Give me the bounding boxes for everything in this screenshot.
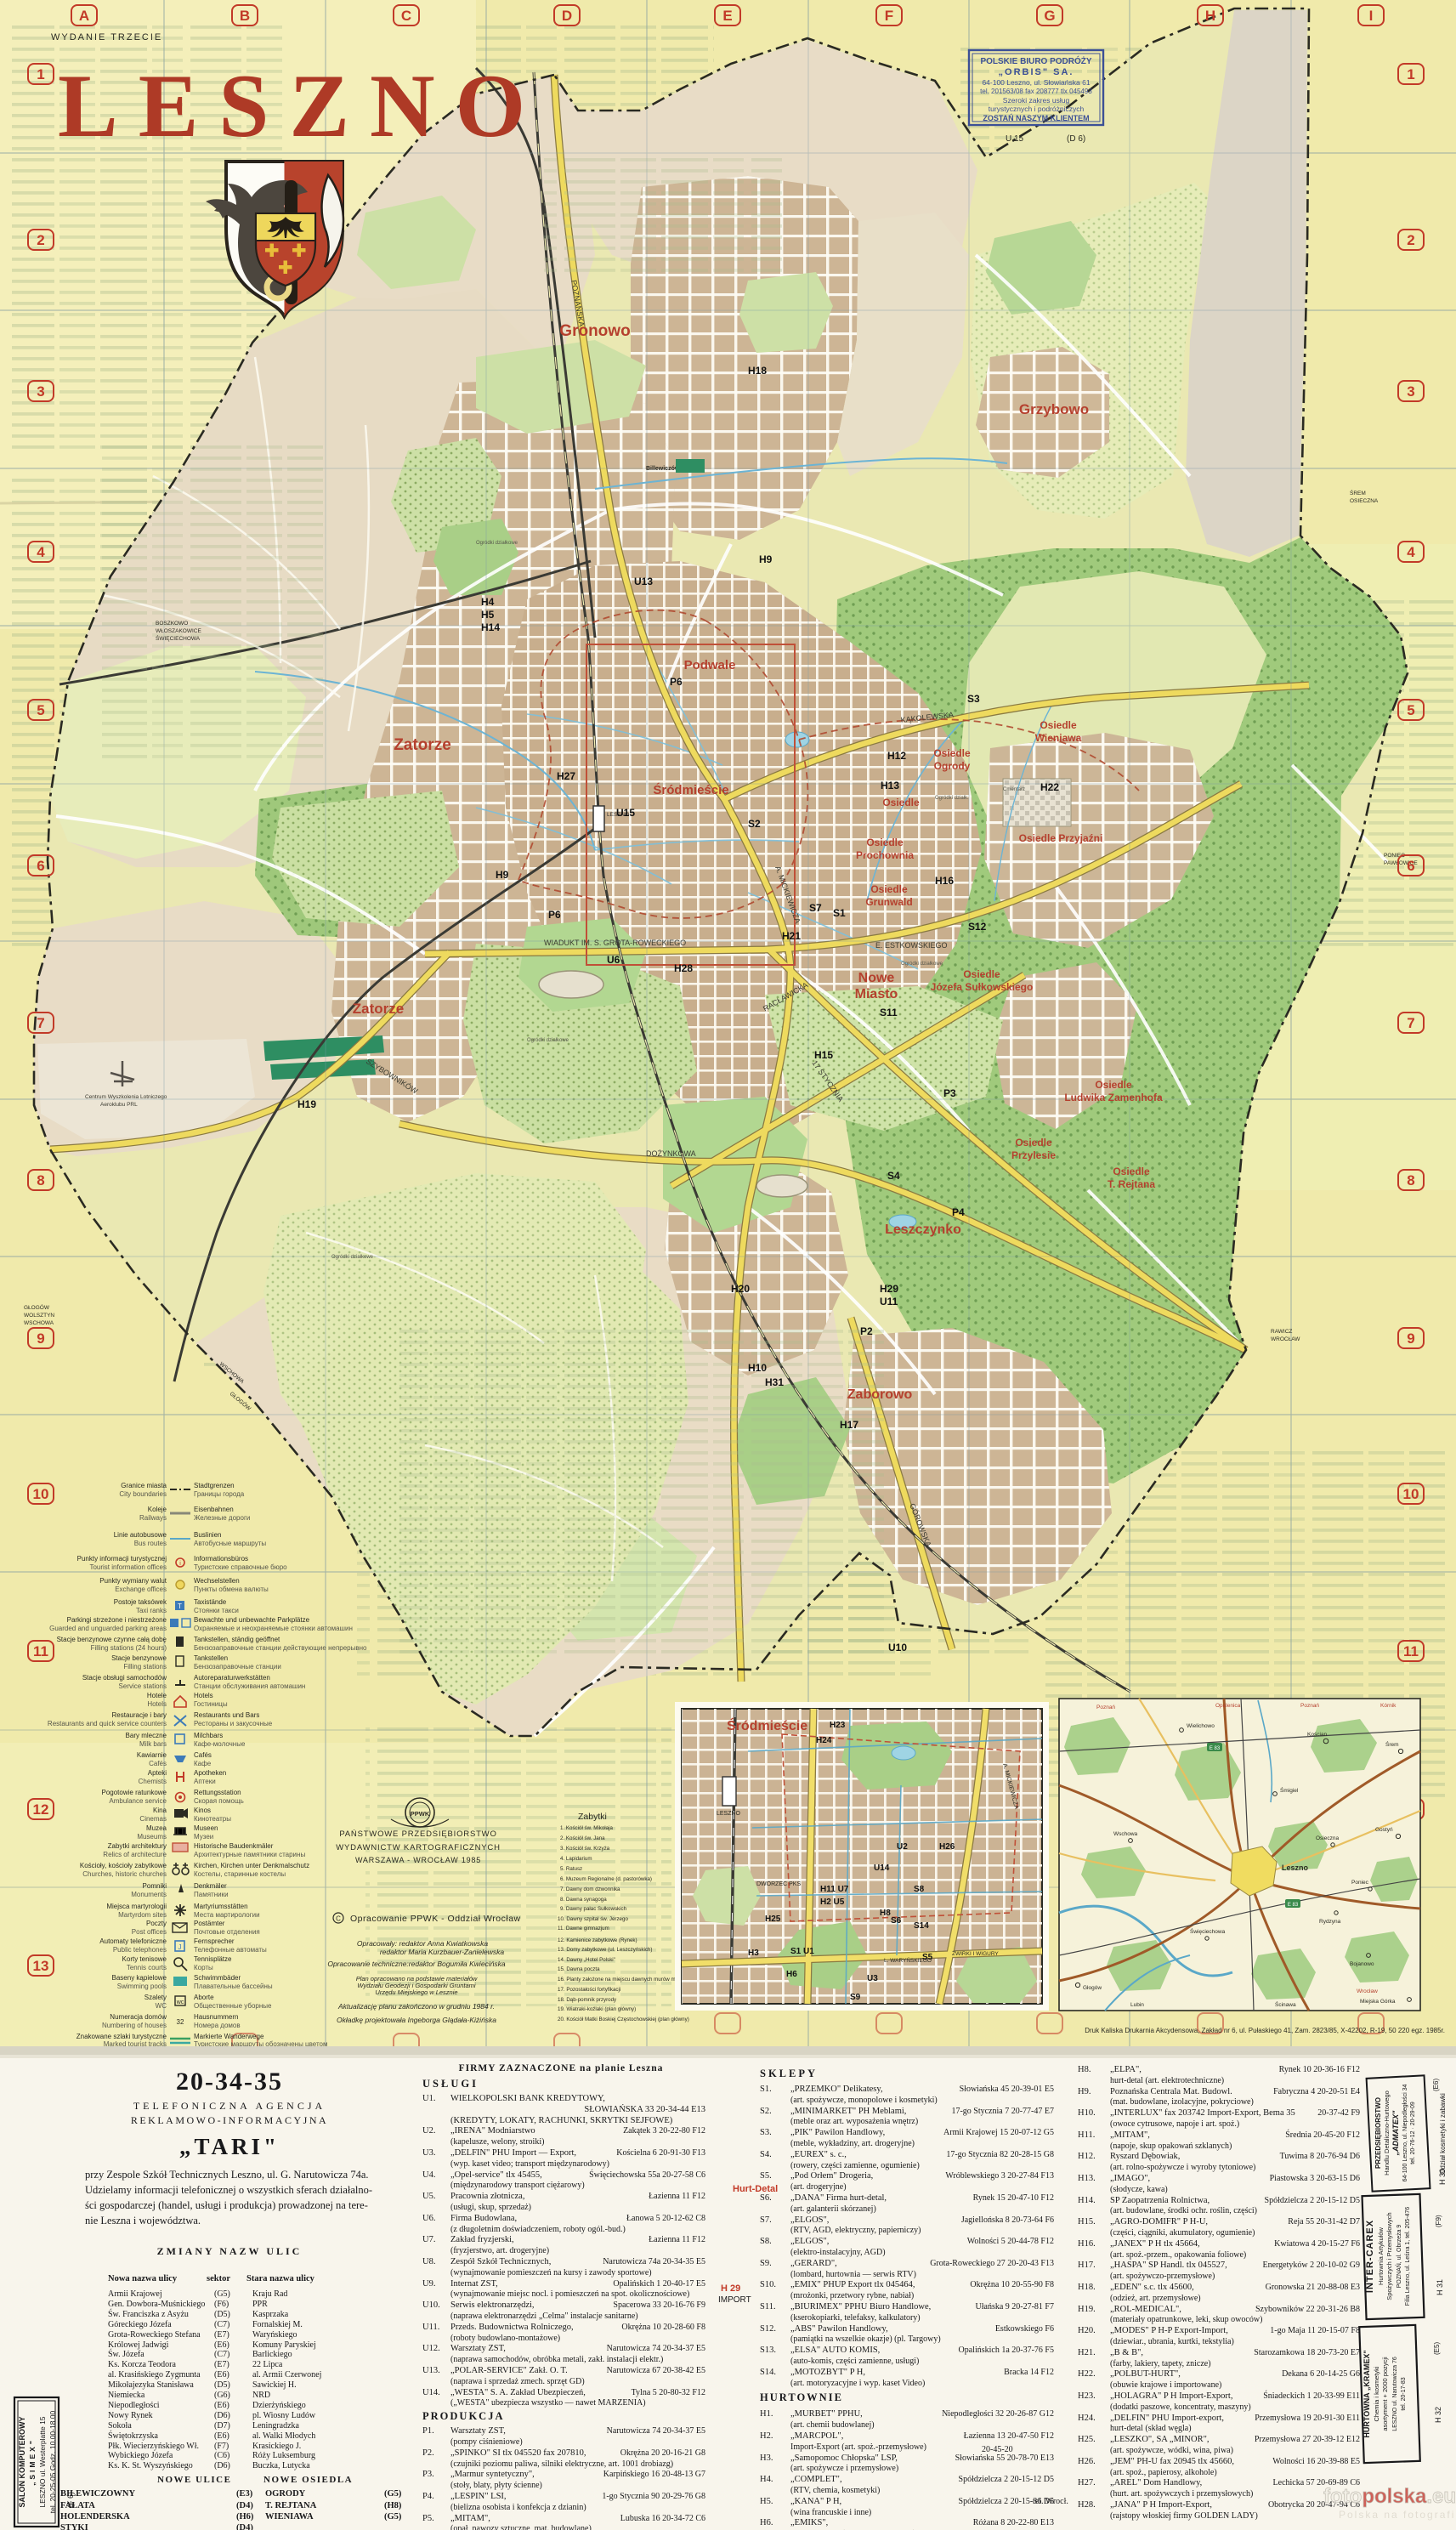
svg-text:H20.: H20. [1078,2326,1096,2335]
svg-text:(hurt. art. spożywczych i prze: (hurt. art. spożywczych i przemysłowych) [1110,2489,1253,2499]
svg-text:(stoły, blaty, płyty ścienne): (stoły, blaty, płyty ścienne) [450,2481,542,2490]
svg-text:„TARI": „TARI" [179,2134,280,2159]
svg-text:U11.: U11. [422,2323,439,2332]
svg-text:H11 U7: H11 U7 [820,1885,849,1894]
svg-text:Ks. K. St. Wyszyńskiego: Ks. K. St. Wyszyńskiego [108,2461,193,2470]
svg-text:Miejsca martyrologii: Miejsca martyrologii [106,1903,167,1910]
svg-text:Karpińskiego 16 20-48-13 G: Karpińskiego 16 20-48-13 G7 [603,2470,705,2479]
svg-text:(odzież, art. przemysłowe): (odzież, art. przemysłowe) [1110,2294,1201,2303]
svg-text:Przemysłowa 19 20-91-30 E1: Przemysłowa 19 20-91-30 E11 [1255,2414,1360,2423]
svg-text:Okrężna 10 20-55-90 F8: Okrężna 10 20-55-90 F8 [970,2280,1054,2289]
svg-text:Пункты обмена валюты: Пункты обмена валюты [194,1586,269,1593]
svg-text:E 83: E 83 [1210,1746,1221,1751]
svg-text:H10: H10 [748,1362,767,1374]
svg-text:S7.: S7. [760,2215,772,2225]
svg-text:9: 9 [1407,1330,1414,1347]
svg-text:Automaty telefoniczne: Automaty telefoniczne [99,1937,167,1945]
svg-text:T: T [178,1603,182,1610]
svg-text:Tylna 5 20-80-32 F12: Tylna 5 20-80-32 F12 [632,2388,705,2397]
svg-text:Łazienna 13 20-47-50 F12: Łazienna 13 20-47-50 F12 [964,2431,1054,2441]
svg-text:„GERARD",: „GERARD", [790,2259,837,2268]
svg-text:Pomniki: Pomniki [143,1882,167,1890]
svg-text:U14: U14 [874,1863,890,1873]
svg-text:STYKI: STYKI [60,2523,88,2530]
svg-text:U2: U2 [897,1842,908,1852]
svg-text:Barlickiego: Barlickiego [252,2350,292,2359]
svg-text:(E7): (E7) [214,2360,229,2369]
svg-text:al. Walki Młodych: al. Walki Młodych [252,2431,315,2441]
svg-text:Wechselstellen: Wechselstellen [194,1577,240,1585]
svg-text:Krasickiego J.: Krasickiego J. [252,2442,301,2451]
svg-text:sektor: sektor [207,2274,230,2283]
svg-text:POZNAŃ, ul. Obrzeża 9: POZNAŃ, ul. Obrzeża 9 [1395,2225,1402,2289]
svg-text:(D6): (D6) [214,2411,230,2420]
svg-text:Serwis elektronarzędzi,: Serwis elektronarzędzi, [450,2300,535,2310]
svg-text:Poznań: Poznań [1096,1705,1115,1710]
svg-text:Rynek 15 20-47-10 F12: Rynek 15 20-47-10 F12 [973,2193,1054,2203]
svg-text:(art. spożywczo-przemysłowe): (art. spożywczo-przemysłowe) [1110,2272,1215,2281]
svg-text:Waryńskiego: Waryńskiego [252,2330,297,2340]
svg-text:Exchange offices: Exchange offices [115,1586,167,1593]
svg-text:WSCHOWA: WSCHOWA [24,1320,54,1326]
svg-text:H27: H27 [557,770,575,782]
svg-text:H 32: H 32 [1434,2407,1442,2423]
svg-text:(E3): (E3) [236,2489,253,2499]
svg-text:Średnia 20-45-20 F12: Średnia 20-45-20 F12 [1285,2130,1360,2140]
svg-text:5: 5 [1407,702,1414,718]
svg-text:H9: H9 [496,869,509,881]
svg-text:2: 2 [1407,232,1414,248]
svg-text:G: G [1044,8,1055,24]
svg-text:S11.: S11. [760,2302,776,2312]
svg-text:(owoce cytrusowe, napoje i art: (owoce cytrusowe, napoje i art. spoż.) [1110,2119,1239,2129]
svg-text:Leszczynko: Leszczynko [885,1222,961,1237]
svg-text:13: 13 [33,1958,49,1974]
svg-text:Bus routes: Bus routes [134,1540,167,1547]
svg-text:Tankstellen: Tankstellen [194,1654,228,1662]
svg-text:Buslinien: Buslinien [194,1531,221,1539]
svg-text:Sokoła: Sokoła [108,2421,132,2431]
svg-text:Monuments: Monuments [131,1891,167,1898]
svg-text:Tuwima 8 20-76-94 D6: Tuwima 8 20-76-94 D6 [1280,2152,1360,2161]
svg-text:H22.: H22. [1078,2369,1096,2379]
svg-text:Import-Export (art. spoż.-prze: Import-Export (art. spoż.-przemysłowe) [790,2442,926,2452]
svg-text:Słowiańska 45 20-39-01 E5: Słowiańska 45 20-39-01 E5 [960,2085,1054,2094]
svg-text:Wolności 16 20-39-88 E5: Wolności 16 20-39-88 E5 [1272,2457,1360,2466]
svg-text:„ELGOS",: „ELGOS", [790,2215,829,2225]
svg-text:15. Dawna poczta: 15. Dawna poczta [558,1966,600,1972]
svg-text:Post offices: Post offices [132,1928,167,1936]
svg-text:Filling stations: Filling stations [123,1663,167,1671]
svg-text:Hurt-Detal: Hurt-Detal [733,2184,778,2194]
svg-text:Aeroklubu PRL: Aeroklubu PRL [100,1102,138,1108]
svg-text:(dziewiar., ubrania, kurtki, t: (dziewiar., ubrania, kurtki, tekstylia) [1110,2337,1234,2346]
svg-text:10. Dawny szpital św. Jerzego: 10. Dawny szpital św. Jerzego [558,1916,628,1922]
svg-text:Narutowicza 74a 20-34-35 E: Narutowicza 74a 20-34-35 E5 [603,2257,705,2266]
svg-text:Osiedle: Osiedle [882,797,920,808]
svg-text:1: 1 [37,66,44,82]
svg-text:Różana 8 20-22-80 E13: Różana 8 20-22-80 E13 [973,2518,1054,2527]
svg-text:P6: P6 [670,676,683,688]
svg-text:H24: H24 [816,1736,832,1745]
svg-text:H14: H14 [481,621,500,633]
svg-text:H9: H9 [759,553,773,565]
svg-text:„MINIMARKET" PH Meblami,: „MINIMARKET" PH Meblami, [790,2107,906,2116]
svg-text:(art. budowlane, środki ochr.: (art. budowlane, środki ochr. roślin, cz… [1110,2206,1257,2215]
svg-text:(słodycze, kawa): (słodycze, kawa) [1110,2185,1168,2194]
svg-text:Rydzyna: Rydzyna [1319,1919,1341,1925]
svg-text:„BIURIMEX" PPHU Biuro Handlowe: „BIURIMEX" PPHU Biuro Handlowe, [790,2302,931,2312]
svg-text:H16: H16 [935,875,954,887]
svg-text:(art. chemii budowlanej): (art. chemii budowlanej) [790,2420,875,2430]
svg-text:7. Dawny dom dzwonnika: 7. Dawny dom dzwonnika [560,1886,620,1892]
svg-text:1-go Stycznia 90 20-29-76: 1-go Stycznia 90 20-29-76 G8 [602,2492,705,2501]
svg-text:H3.: H3. [760,2453,773,2463]
svg-text:ŻWIRKI I WIGURY: ŻWIRKI I WIGURY [952,1949,999,1957]
svg-text:Osiedle: Osiedle [866,837,904,848]
svg-text:nie Leszna i województwa.: nie Leszna i województwa. [85,2215,201,2227]
svg-text:POLSKIE BIURO PODRÓŻY: POLSKIE BIURO PODRÓŻY [980,55,1091,66]
svg-text:P6: P6 [548,909,561,921]
svg-text:PPWK: PPWK [411,1810,430,1818]
svg-text:11. Dawne gimnazjum: 11. Dawne gimnazjum [558,1926,609,1932]
svg-text:Mikołajezyka Stanisława: Mikołajezyka Stanisława [108,2380,194,2390]
svg-text:Grunwald: Grunwald [865,896,912,908]
svg-text:al. Armii Czerwonej: al. Armii Czerwonej [252,2370,321,2380]
svg-text:3: 3 [1407,383,1414,400]
svg-text:Zakątek 3 20-22-80 F12: Zakątek 3 20-22-80 F12 [623,2126,705,2136]
svg-text:Szeroki zakres usług: Szeroki zakres usług [1003,96,1070,105]
svg-text:1. Kościół św. Mikołaja: 1. Kościół św. Mikołaja [560,1825,613,1831]
svg-text:Wielichowo: Wielichowo [1187,1723,1215,1729]
svg-text:12. Kamienice zabytkowe (Ryne: 12. Kamienice zabytkowe (Rynek) [558,1937,637,1943]
svg-text:Punkty wymiany walut: Punkty wymiany walut [99,1577,167,1585]
svg-text:Wybickiego Józefa: Wybickiego Józefa [108,2451,173,2460]
svg-text:„POLAR-SERVICE" Zakł. O. T.: „POLAR-SERVICE" Zakł. O. T. [450,2366,568,2375]
svg-text:WŁOSZAKOWICE: WŁOSZAKOWICE [156,628,201,634]
svg-text:Stacje benzynowe: Stacje benzynowe [111,1654,167,1662]
svg-text:ŚWIĘCIECHOWA: ŚWIĘCIECHOWA [156,634,201,642]
svg-text:H15: H15 [814,1049,833,1061]
svg-text:P5.: P5. [422,2514,434,2523]
svg-text:„LESZKO", SA „MINOR",: „LESZKO", SA „MINOR", [1110,2435,1209,2444]
svg-text:Starozamkowa 18 20-73-20 E: Starozamkowa 18 20-73-20 E7 [1254,2348,1360,2357]
svg-text:(materiały opatrunkowe, leki,: (materiały opatrunkowe, leki, skup owocó… [1110,2315,1262,2324]
svg-text:HURTOWNA „KRAMEX": HURTOWNA „KRAMEX" [1363,2350,1371,2437]
svg-text:Телефонные автоматы: Телефонные автоматы [194,1946,267,1954]
svg-text:(RTV, chemia, kosmetyki): (RTV, chemia, kosmetyki) [790,2486,880,2495]
svg-text:H27.: H27. [1078,2478,1096,2487]
svg-text:Komuny Paryskiej: Komuny Paryskiej [252,2340,316,2350]
svg-text:S4.: S4. [760,2150,772,2159]
svg-text:Okrężna 20 20-16-21 G8: Okrężna 20 20-16-21 G8 [620,2448,705,2458]
svg-text:Muzea: Muzea [146,1824,167,1832]
svg-text:„JEM" PH-U fax 20945 tlx 45660: „JEM" PH-U fax 20945 tlx 45660, [1110,2457,1234,2466]
svg-text:17. Pozostałości fortyfikacji: 17. Pozostałości fortyfikacji [558,1987,620,1993]
svg-text:Dzierżyńskiego: Dzierżyńskiego [252,2401,306,2410]
svg-text:S12.: S12. [760,2324,776,2334]
svg-text:Spacerowa 33 20-16-76 F9: Spacerowa 33 20-16-76 F9 [613,2300,705,2310]
svg-text:Słowiańska 55 20-78-70 E13: Słowiańska 55 20-78-70 E13 [955,2453,1054,2463]
svg-text:(E6): (E6) [214,2340,229,2350]
svg-text:(z długoletnim doświadczeniem,: (z długoletnim doświadczeniem, roboty og… [450,2225,626,2234]
svg-text:„B & B",: „B & B", [1110,2348,1143,2357]
svg-text:Opracowanie PPWK - Oddział Wro: Opracowanie PPWK - Oddział Wrocław [350,1914,521,1924]
svg-text:U5.: U5. [422,2192,435,2201]
svg-text:1: 1 [1407,66,1414,82]
svg-text:(napoje, skup opakowań szklany: (napoje, skup opakowań szklanych) [1110,2141,1232,2151]
svg-text:20-37-42 F9: 20-37-42 F9 [1317,2108,1360,2118]
svg-text:(rowery, części zamienne, ogum: (rowery, części zamienne, ogumienie) [790,2161,920,2170]
svg-text:(wynajmowanie miejsc nocl. i p: (wynajmowanie miejsc nocl. i pomieszczeń… [450,2289,689,2299]
svg-text:(mrożonki, przetwory rybne, na: (mrożonki, przetwory rybne, nabiał) [790,2291,914,2300]
svg-text:Osiedle: Osiedle [1095,1079,1132,1091]
svg-text:Milk bars: Milk bars [139,1740,167,1748]
svg-text:hurt-detal (skład węgla): hurt-detal (skład węgla) [1110,2424,1192,2433]
svg-text:Niepodległości 32 20-26-87: Niepodległości 32 20-26-87 G12 [942,2409,1054,2419]
svg-text:Wrocław: Wrocław [1357,1988,1378,1994]
svg-text:(F7): (F7) [214,2442,229,2451]
svg-text:„MODES" P H-P Export-Import,: „MODES" P H-P Export-Import, [1110,2326,1228,2335]
svg-text:Zespół Szkół Technicznych,: Zespół Szkół Technicznych, [450,2257,551,2266]
svg-text:Przylesie: Przylesie [1011,1149,1056,1161]
svg-text:(art. galanterii skórzanej): (art. galanterii skórzanej) [790,2204,876,2214]
svg-text:Fornalskiej M.: Fornalskiej M. [252,2320,303,2329]
svg-text:(auto-komis, części zamienne,: (auto-komis, części zamienne, usługi) [790,2357,919,2366]
svg-text:20-45-20: 20-45-20 [982,2445,1013,2454]
svg-text:Ryszard Dębowiak,: Ryszard Dębowiak, [1110,2152,1180,2161]
svg-text:H17.: H17. [1078,2261,1096,2270]
svg-text:(C7): (C7) [214,2320,229,2329]
svg-text:Cmentarz: Cmentarz [1003,787,1025,792]
svg-text:Denkmäler: Denkmäler [194,1882,227,1890]
svg-text:„JANEX" P H tlx 45664,: „JANEX" P H tlx 45664, [1110,2239,1200,2249]
svg-text:(wynajmowanie pomieszczeń na k: (wynajmowanie pomieszczeń na kursy i zaw… [450,2268,652,2278]
svg-text:Kwiatowa 4 20-15-27 F6: Kwiatowa 4 20-15-27 F6 [1274,2239,1360,2249]
svg-text:(rajstopy włoskiej firmy GOLDE: (rajstopy włoskiej firmy GOLDEN LADY) [1110,2511,1258,2521]
svg-text:S9.: S9. [760,2259,772,2268]
svg-text:IMPORT: IMPORT [718,2295,751,2305]
svg-text:Restaurants und Bars: Restaurants und Bars [194,1711,259,1719]
svg-text:Opracowały: redaktor Anna Kwia: Opracowały: redaktor Anna Kwiatkowska [357,1939,488,1948]
svg-text:Poniec: Poniec [1351,1880,1369,1886]
svg-text:Energetyków 2 20-10-02 G9: Energetyków 2 20-10-02 G9 [1262,2261,1360,2270]
svg-text:Wolności 5 20-44-78 F12: Wolności 5 20-44-78 F12 [967,2237,1054,2246]
svg-text:Okładkę projektowała Ingeborga: Okładkę projektowała Ingeborga Glądała-K… [337,2016,496,2024]
svg-text:INTER-CAREX: INTER-CAREX [1365,2220,1375,2293]
svg-text:Stadtgrenzen: Stadtgrenzen [194,1482,235,1489]
svg-text:Aktualizację planu zakończono: Aktualizację planu zakończono w grudniu … [337,2002,495,2011]
svg-text:WROCŁAW: WROCŁAW [1271,1336,1300,1342]
svg-text:Spółdzielcza 2 20-15-12 D5: Spółdzielcza 2 20-15-12 D5 [959,2475,1054,2484]
svg-text:Wschowa: Wschowa [1113,1831,1138,1837]
svg-text:(D5): (D5) [214,2380,230,2390]
svg-text:Taxistände: Taxistände [194,1598,227,1606]
svg-text:(naprawa i sprzedaż zmech. spr: (naprawa i sprzedaż zmech. sprzęt GD) [450,2377,585,2386]
svg-text:Eisenbahnen: Eisenbahnen [194,1506,234,1513]
svg-text:10: 10 [1403,1486,1419,1502]
svg-text:Łazienna 11 F12: Łazienna 11 F12 [649,2192,705,2201]
svg-text:Głogów: Głogów [1083,1985,1102,1991]
svg-text:S5.: S5. [760,2171,772,2181]
svg-text:przy Zespole Szkół Technicznyc: przy Zespole Szkół Technicznych Leszno, … [85,2169,369,2181]
svg-text:C: C [336,1915,341,1923]
svg-text:Śródmieście: Śródmieście [727,1717,807,1733]
svg-text:Św. Józefa: Św. Józefa [108,2349,144,2359]
svg-text:„ADMATEX": „ADMATEX" [1391,2110,1400,2156]
svg-text:SŁOWIAŃSKA 33 20-34-44 E13: SŁOWIAŃSKA 33 20-34-44 E13 [584,2104,705,2114]
svg-text:al. Krasińskiego Zygmunta: al. Krasińskiego Zygmunta [108,2370,201,2380]
svg-text:T. Rejtana: T. Rejtana [1108,1178,1155,1190]
svg-text:„ORBIS" SA.: „ORBIS" SA. [999,67,1074,77]
svg-text:H12: H12 [887,750,906,762]
svg-text:„Samopomoc Chłopska" LSP,: „Samopomoc Chłopska" LSP, [790,2453,898,2463]
svg-text:S10.: S10. [760,2280,776,2289]
svg-text:Gronowo: Gronowo [559,322,630,340]
svg-text:H10.: H10. [1078,2108,1096,2118]
svg-text:Dekana 6 20-14-25 G6: Dekana 6 20-14-25 G6 [1282,2369,1360,2379]
svg-text:Bojanowo: Bojanowo [1350,1961,1374,1967]
svg-text:P2: P2 [860,1325,873,1337]
svg-text:Miejska Górka: Miejska Górka [1360,1999,1396,2005]
svg-text:tel. 20-25-05 Godz. 10.00-18.: tel. 20-25-05 Godz. 10.00-18.00 [48,2410,57,2513]
svg-text:Границы города: Границы города [194,1490,245,1498]
svg-text:S14: S14 [914,1921,929,1931]
svg-text:Martyrdom sites: Martyrdom sites [118,1911,167,1919]
svg-text:Róży Luksemburg: Róży Luksemburg [252,2451,315,2460]
svg-text:Poczty: Poczty [146,1920,167,1927]
svg-text:Костелы, старинные костелы: Костелы, старинные костелы [194,1870,286,1878]
svg-text:Kinos: Kinos [194,1807,211,1814]
svg-text:(E6): (E6) [1432,2079,1440,2091]
svg-text:fotopolska.eu: fotopolska.eu [1323,2485,1456,2508]
svg-text:S8.: S8. [760,2237,772,2246]
svg-text:8: 8 [37,1172,44,1188]
svg-text:Reja 55 20-31-42 D7: Reja 55 20-31-42 D7 [1288,2217,1360,2227]
svg-text:2. Kościół św. Jana: 2. Kościół św. Jana [560,1835,605,1841]
svg-text:Музеи: Музеи [194,1833,213,1841]
svg-text:Скорая помощь: Скорая помощь [194,1797,244,1805]
svg-text:Osiedle: Osiedle [1015,1137,1052,1149]
svg-text:Zakład fryzjerski,: Zakład fryzjerski, [450,2235,514,2244]
svg-text:Parkingi strzeżone i niestrzeż: Parkingi strzeżone i niestrzeżone [67,1616,167,1624]
svg-text:S2.: S2. [760,2107,772,2116]
svg-text:(„WESTA" ubezpiecza wszystko —: („WESTA" ubezpiecza wszystko — nawet MAR… [450,2398,646,2408]
svg-text:Kraju Rad: Kraju Rad [252,2289,287,2299]
svg-text:L. WARYŃSKIEGO: L. WARYŃSKIEGO [884,1956,932,1964]
svg-text:S14.: S14. [760,2368,776,2377]
svg-text:Museen: Museen [194,1824,218,1832]
svg-text:„SPINKO" SI tlx 045520 fax 207: „SPINKO" SI tlx 045520 fax 207810, [450,2448,586,2458]
svg-text:Poznańska Centrala Mat. Budowl: Poznańska Centrala Mat. Budowl. [1110,2087,1232,2096]
svg-text:Архитектурные памятники старин: Архитектурные памятники старины [194,1851,305,1858]
svg-text:(naprawa elektronarzędzi „Celm: (naprawa elektronarzędzi „Celma" instala… [450,2312,638,2321]
svg-text:Zatorze: Zatorze [353,1001,404,1017]
svg-text:LESZNO ul. Westerplatte 15: LESZNO ul. Westerplatte 15 [38,2416,47,2507]
svg-text:(G6): (G6) [214,2391,230,2400]
svg-text:U4.: U4. [422,2170,435,2180]
svg-text:Stacje obsługi samochodów: Stacje obsługi samochodów [82,1674,167,1682]
svg-text:turystycznych i podróżniczych: turystycznych i podróżniczych [989,105,1085,113]
svg-text:13. Domy zabytkowe (ul. Leszc: 13. Domy zabytkowe (ul. Leszczyńskich) [558,1947,652,1953]
svg-text:Tourist information offices: Tourist information offices [89,1563,167,1571]
svg-text:ZMIANY NAZW ULIC: ZMIANY NAZW ULIC [157,2245,303,2257]
svg-text:Leningradzka: Leningradzka [252,2421,300,2431]
svg-text:NRD: NRD [252,2391,270,2400]
svg-text:GŁOGÓW: GŁOGÓW [24,1303,50,1311]
svg-text:Grzybowo: Grzybowo [1019,401,1089,417]
svg-text:Podwale: Podwale [684,658,736,672]
svg-text:tel. Wrocł.: tel. Wrocł. [1033,2497,1068,2506]
svg-text:Кинотеатры: Кинотеатры [194,1815,231,1823]
svg-text:WARSZAWA - WROCŁAW 1985: WARSZAWA - WROCŁAW 1985 [355,1856,481,1864]
svg-text:Postoje taksówek: Postoje taksówek [114,1598,167,1606]
svg-text:Hotele: Hotele [147,1692,167,1699]
svg-text:H6: H6 [786,1970,797,1979]
svg-text:P2.: P2. [422,2448,434,2458]
svg-text:NOWE OSIEDLA: NOWE OSIEDLA [263,2475,353,2485]
svg-text:Polska na fotografii: Polska na fotografii [1339,2509,1456,2521]
svg-text:Rynek 10 20-36-16 F12: Rynek 10 20-36-16 F12 [1279,2065,1360,2074]
svg-text:H1.: H1. [760,2409,773,2419]
svg-text:(RTV, AGD, elektryczny, papier: (RTV, AGD, elektryczny, papierniczy) [790,2226,921,2235]
svg-text:Gen. Dowbora-Muśnickiego: Gen. Dowbora-Muśnickiego [108,2300,205,2309]
svg-text:Granice miasta: Granice miasta [121,1482,167,1489]
svg-text:S1 U1: S1 U1 [790,1947,814,1956]
svg-text:Kina: Kina [153,1807,167,1814]
svg-text:WYDANIE TRZECIE: WYDANIE TRZECIE [51,32,162,43]
svg-text:„IRENA" Modniarstwo: „IRENA" Modniarstwo [450,2126,535,2136]
svg-text:(E6): (E6) [214,2370,229,2380]
svg-text:(C6): (C6) [214,2451,229,2460]
svg-text:U13: U13 [634,576,653,587]
svg-text:Hausnummern: Hausnummern [194,2013,238,2021]
svg-text:Śniadeckich 1 20-33-99 E11: Śniadeckich 1 20-33-99 E11 [1263,2391,1360,2401]
svg-text:(dodatki paszowe, koncentraty,: (dodatki paszowe, koncentraty, maszyny) [1110,2402,1251,2412]
svg-text:„DELFIN" PHU Import-export,: „DELFIN" PHU Import-export, [1110,2414,1224,2423]
svg-text:Wieniawa: Wieniawa [1035,732,1082,744]
svg-text:P3.: P3. [422,2470,434,2479]
svg-text:6: 6 [1407,858,1414,874]
svg-text:E: E [722,8,732,24]
svg-text:Кафе-молочные: Кафе-молочные [194,1740,246,1748]
svg-text:12: 12 [33,1801,49,1818]
svg-text:Cafés: Cafés [194,1751,212,1759]
svg-text:S7: S7 [809,902,822,914]
svg-text:H14.: H14. [1078,2196,1096,2205]
svg-text:(C7): (C7) [214,2350,229,2359]
svg-text:Osiedle: Osiedle [933,747,971,759]
svg-text:S9: S9 [850,1993,861,2002]
svg-text:(E6): (E6) [214,2401,229,2410]
svg-text:Osieczna: Osieczna [1316,1835,1339,1841]
svg-text:RAWICZ: RAWICZ [1271,1329,1292,1335]
svg-text:Udzielamy informacji telefonic: Udzielamy informacji telefonicznej o wsz… [85,2184,372,2196]
svg-text:ŚREM: ŚREM [1350,489,1366,496]
svg-text:Ambulance service: Ambulance service [109,1797,167,1805]
svg-text:U7.: U7. [422,2235,435,2244]
svg-text:H24.: H24. [1078,2414,1096,2423]
svg-text:H26: H26 [939,1842,955,1852]
svg-text:S8: S8 [914,1885,925,1894]
svg-text:(D7): (D7) [214,2421,230,2431]
svg-text:Osiedle: Osiedle [963,968,1000,980]
svg-text:PPR: PPR [252,2300,268,2309]
svg-text:H2.: H2. [760,2431,773,2441]
svg-text:Armii Krajowej: Armii Krajowej [108,2289,162,2299]
svg-text:Święciechowska 55a 20-27-58: Święciechowska 55a 20-27-58 C6 [589,2170,705,2180]
svg-text:H29: H29 [880,1283,898,1295]
